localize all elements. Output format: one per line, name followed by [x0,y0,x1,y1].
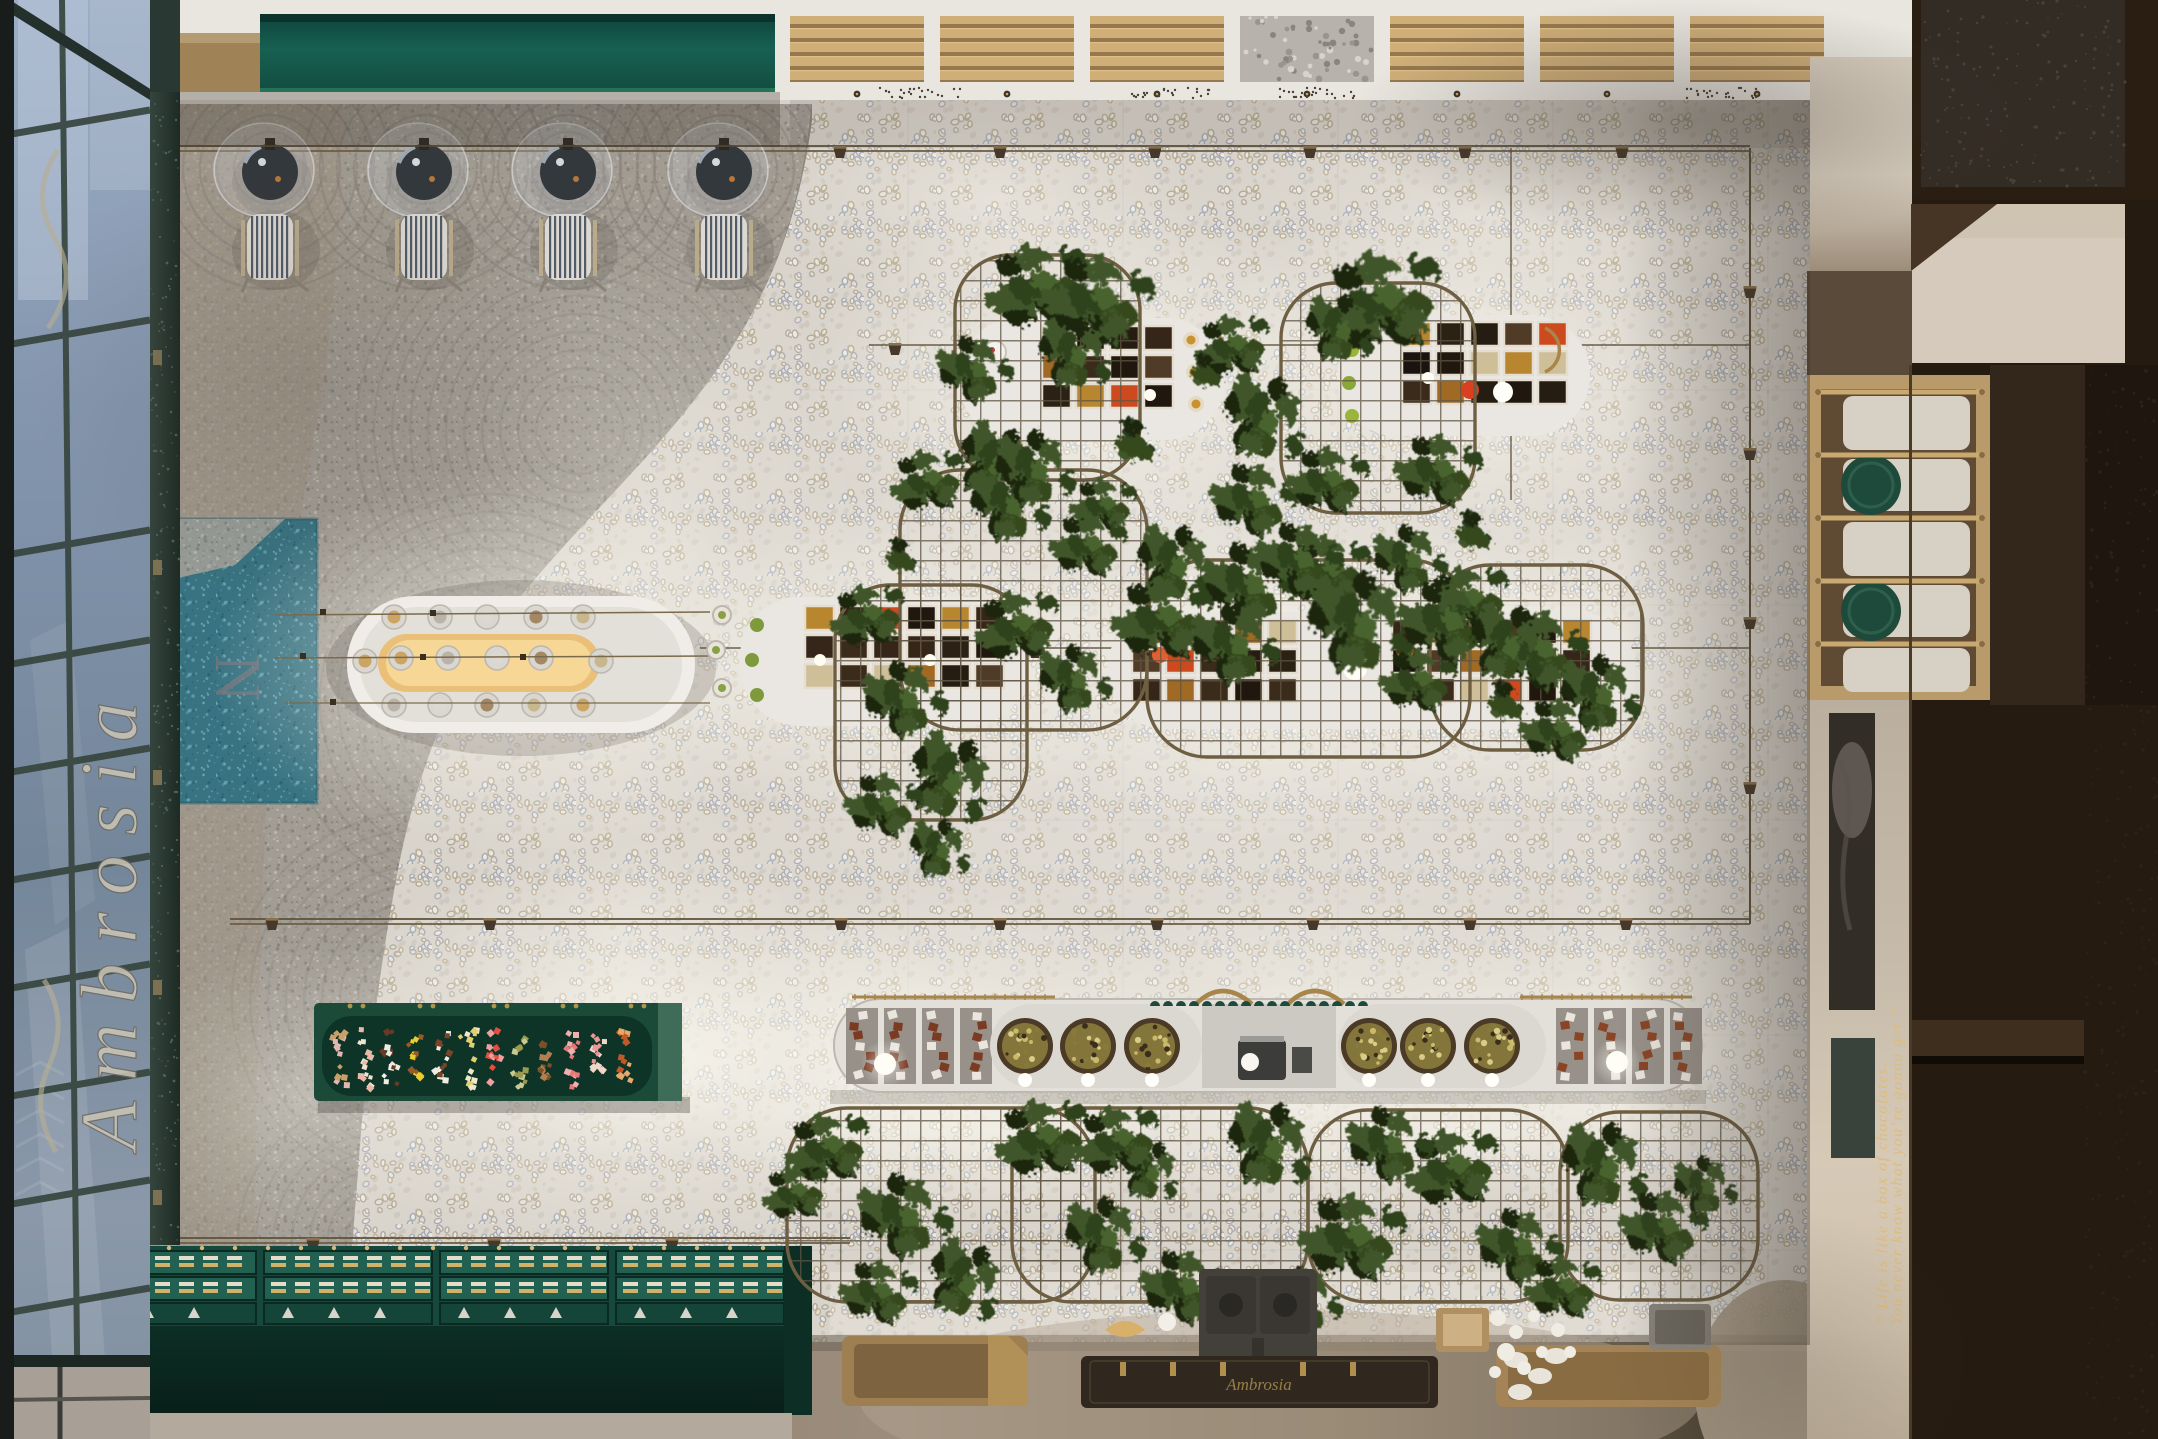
svg-text:Ambrosia: Ambrosia [66,682,154,1155]
svg-text:Ambrosia: Ambrosia [1225,1375,1292,1394]
